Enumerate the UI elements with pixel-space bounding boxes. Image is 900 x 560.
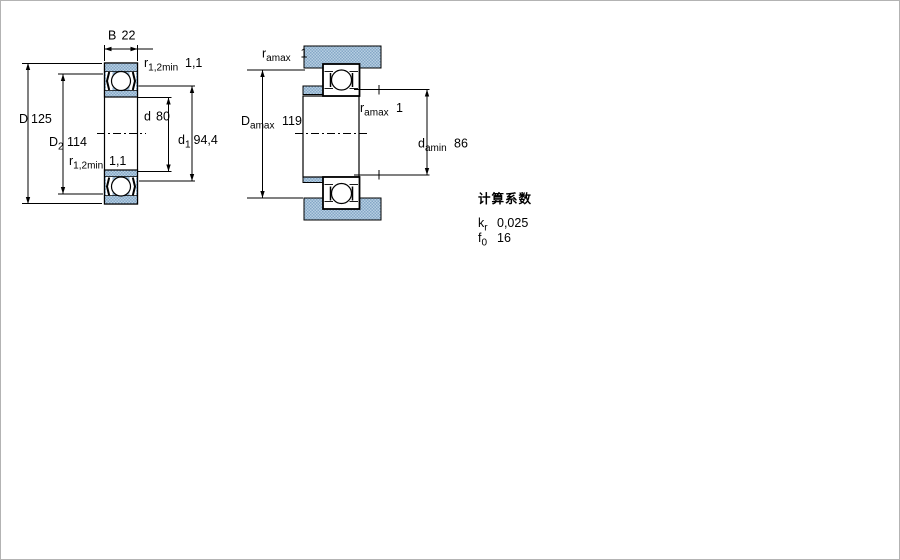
arrowhead	[105, 47, 112, 51]
dim-value: 1	[396, 101, 403, 115]
dim-subscript: 1	[185, 140, 191, 151]
label-Da: Damax119	[241, 114, 302, 132]
dim-subscript: 1,2min	[148, 63, 178, 74]
dim-d1	[139, 86, 196, 181]
dim-value: 94,4	[194, 133, 218, 147]
dim-value: 119	[282, 114, 302, 128]
dim-subscript: amax	[250, 121, 274, 132]
dim-symbol: d	[144, 110, 151, 124]
dim-value: 1	[301, 47, 308, 61]
dim-subscript: amax	[364, 108, 388, 119]
calculation-factors-title: 计算系数	[478, 188, 532, 207]
dim-subscript: 1,2min	[73, 161, 103, 172]
label-B: B22	[108, 29, 135, 43]
label-D2: D2114	[49, 135, 87, 153]
figure1-bearing-cross-section: B22 r1,2min1,1 D125 D2114 r1,2min1,1	[19, 29, 218, 205]
calc-row-f0: f016	[478, 231, 532, 246]
label-d: d80	[144, 110, 170, 124]
arrowhead	[61, 74, 65, 81]
label-D: D125	[19, 112, 52, 126]
ball	[332, 70, 352, 90]
label-d1: d194,4	[178, 133, 218, 151]
ball	[332, 184, 352, 204]
arrowhead	[260, 70, 264, 77]
ball	[112, 72, 131, 91]
dim-symbol: D	[19, 112, 28, 126]
dim-symbol: d	[178, 133, 185, 147]
arrowhead	[26, 197, 30, 204]
label-r12-top: r1,2min1,1	[144, 56, 202, 74]
dim-value: 1,1	[185, 56, 202, 70]
dim-symbol: d	[418, 137, 425, 151]
label-ra-mid: ramax1	[360, 101, 403, 119]
factor-value: 16	[497, 231, 511, 245]
arrowhead	[166, 98, 170, 105]
arrowhead	[260, 191, 264, 198]
dim-symbol: D	[49, 135, 58, 149]
arrowhead	[61, 187, 65, 194]
calculation-factors: 计算系数 kr0,025 f016	[478, 188, 532, 246]
dim-value: 86	[454, 137, 468, 151]
dim-subscript: 2	[58, 142, 64, 153]
arrowhead	[166, 165, 170, 172]
dim-value: 114	[67, 135, 87, 149]
dim-subscript: amin	[425, 143, 447, 154]
dim-value: 80	[156, 110, 170, 124]
dim-value: 22	[122, 29, 136, 43]
figure2-mounting-drawing: ramax1 Damax119 ramax1 damin86	[241, 46, 468, 220]
dim-Da	[247, 70, 305, 198]
dim-symbol: D	[241, 114, 250, 128]
dim-symbol: B	[108, 29, 116, 43]
arrowhead	[190, 174, 194, 181]
shaft-section	[303, 96, 359, 177]
dim-subscript: amax	[266, 53, 290, 64]
factor-subscript: 0	[481, 238, 487, 249]
arrowhead	[190, 86, 194, 93]
dim-value: 125	[31, 112, 52, 126]
bearing-bottom-section	[105, 170, 138, 204]
bearing-drawing-canvas: B22 r1,2min1,1 D125 D2114 r1,2min1,1	[0, 0, 900, 560]
bearing-top-section	[105, 63, 138, 97]
arrowhead	[425, 168, 429, 175]
label-da: damin86	[418, 137, 468, 155]
factor-value: 0,025	[497, 216, 528, 230]
technical-drawing: B22 r1,2min1,1 D125 D2114 r1,2min1,1	[1, 1, 701, 281]
shoulder-top	[303, 86, 323, 95]
dim-D2	[58, 74, 103, 194]
mounted-bearing-bottom	[323, 177, 360, 209]
ball	[112, 177, 131, 196]
dim-da	[354, 85, 430, 180]
label-ra-top: ramax1	[262, 47, 308, 65]
mounted-bearing-top	[323, 64, 360, 96]
calc-row-kr: kr0,025	[478, 216, 532, 231]
arrowhead	[425, 90, 429, 97]
arrowhead	[131, 47, 138, 51]
dim-D	[22, 63, 102, 204]
arrowhead	[26, 63, 30, 70]
dim-value: 1,1	[109, 154, 126, 168]
